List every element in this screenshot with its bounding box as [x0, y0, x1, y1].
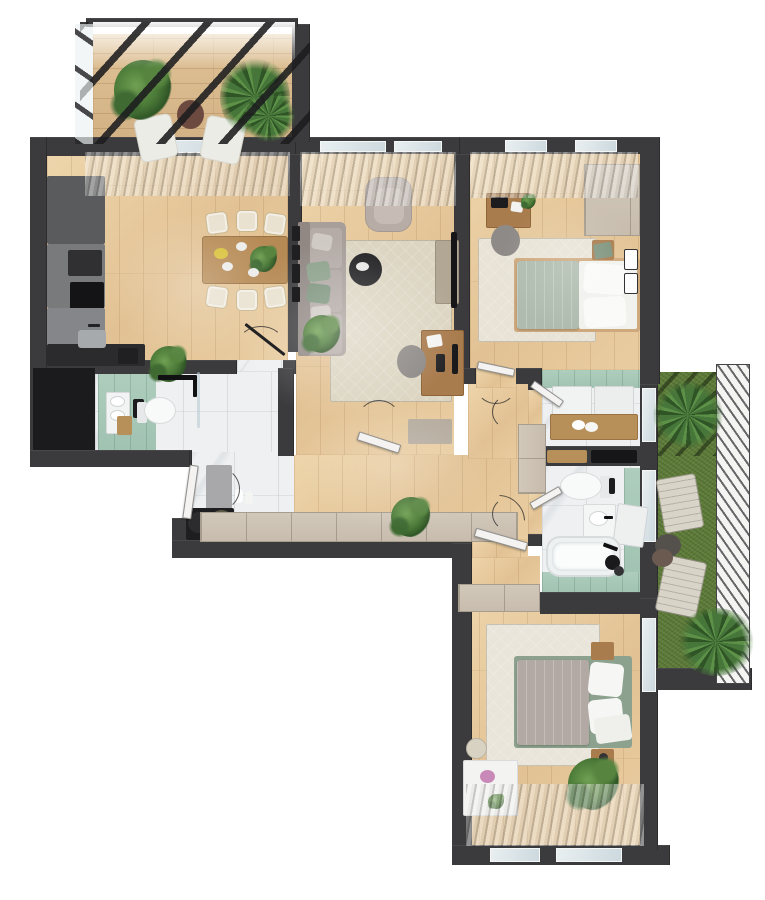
bed1-frame-art-1 [624, 249, 638, 270]
bed2-nightstand-1 [591, 642, 614, 660]
door-arc-laundry [492, 394, 532, 430]
bath2-flush-plate [609, 478, 615, 494]
balcony-palm-bottom [676, 608, 756, 676]
living-frame-2 [292, 245, 300, 260]
laundry-towel-2 [585, 422, 598, 432]
balcony-palm-top [652, 382, 724, 448]
terrace-glass-railing [75, 24, 93, 144]
living-frame-1 [292, 226, 300, 241]
bath1-toilet [144, 397, 176, 424]
laundry-niche [591, 450, 637, 463]
bath1-shower-glass [197, 372, 200, 428]
wall-hall-bottom [172, 540, 472, 558]
window-living-a [320, 141, 386, 152]
window-bed1-b [575, 140, 617, 152]
bed2-pillow-1 [587, 661, 624, 697]
bed2-wardrobe [458, 584, 540, 612]
bed2-flowers-pink [480, 770, 495, 783]
bath1-sink-1 [110, 396, 125, 407]
bath2-faucet [604, 516, 613, 519]
window-bed2-east [642, 618, 656, 692]
bed2-duvet [517, 660, 589, 745]
bath1-stool [117, 416, 132, 435]
terrace-pergola [80, 22, 310, 144]
bed1-frame-art-2 [624, 273, 638, 294]
bed2-floor-lamp [466, 738, 487, 759]
utility-shaft [33, 368, 95, 450]
wall-left-bottom [30, 450, 192, 467]
window-bed2-south-b [556, 848, 622, 862]
curtain-bedroom1 [470, 152, 638, 198]
window-living-b [394, 141, 442, 152]
living-frame-3 [292, 264, 300, 283]
wall-right-upper [640, 137, 660, 384]
wall-hall-left-a [172, 450, 190, 465]
entry-slipper-2 [245, 491, 253, 505]
floor-plan-canvas [0, 0, 765, 900]
curtain-living [300, 152, 456, 206]
wall-bath2-south [540, 592, 656, 614]
kitchen-sink [78, 330, 106, 348]
window-bed2-south-a [490, 848, 540, 862]
bath2-toilet [560, 472, 602, 500]
door-arc-entry [190, 466, 240, 512]
bed2-throw [593, 714, 632, 745]
laundry-dryer [594, 386, 634, 416]
living-frame-4 [292, 287, 300, 302]
laundry-towel-1 [572, 420, 585, 430]
kitchen-oven [68, 250, 102, 276]
window-bed1-a [505, 140, 547, 152]
curtain-kitchen [85, 152, 290, 196]
door-arc-kitchen-hall [238, 326, 284, 362]
bath1-shower-bar [158, 375, 196, 380]
bath2-accessory [614, 566, 624, 576]
balcony-pouf [652, 549, 673, 567]
light-glare-4 [500, 200, 640, 330]
laundry-shelf [547, 450, 587, 463]
hall-wardrobe-vertical [518, 424, 546, 494]
curtain-bedroom2 [466, 784, 644, 846]
door-arc-living [357, 400, 401, 442]
wall-bath2-left-b [528, 534, 542, 546]
kitchen-faucet [88, 324, 100, 327]
